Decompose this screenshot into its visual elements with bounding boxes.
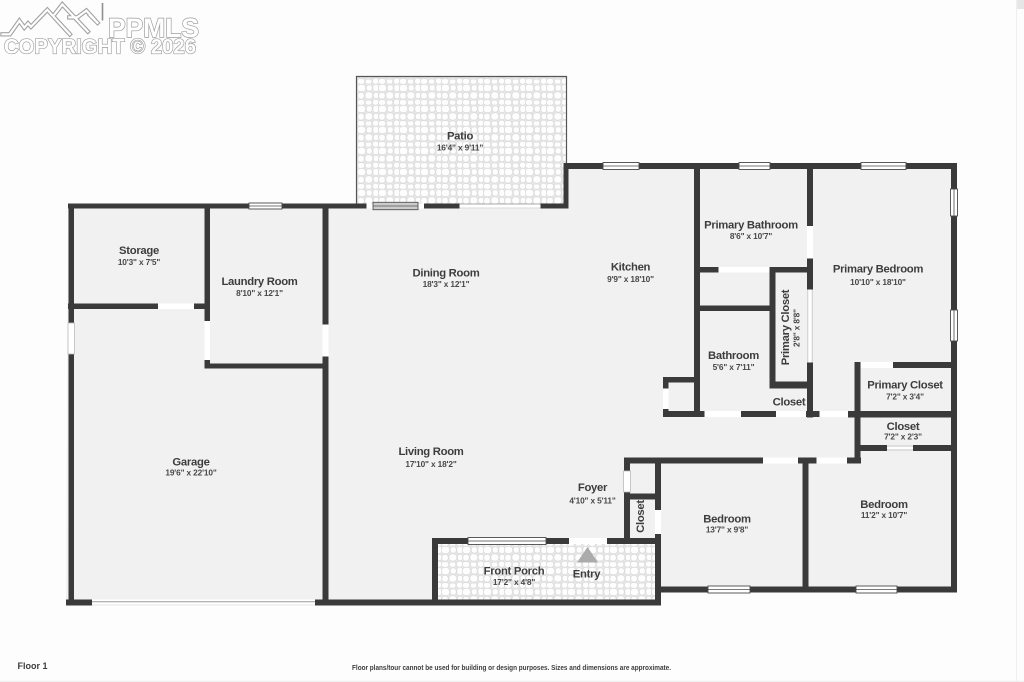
svg-text:Front Porch: Front Porch xyxy=(484,566,545,578)
svg-text:8'10" x 12'1": 8'10" x 12'1" xyxy=(236,288,283,298)
svg-text:Floor 1: Floor 1 xyxy=(18,661,48,671)
svg-text:Primary Bedroom: Primary Bedroom xyxy=(833,264,924,276)
svg-text:16'4" x 9'11": 16'4" x 9'11" xyxy=(437,142,484,152)
svg-text:Patio: Patio xyxy=(447,131,474,143)
svg-text:13'7" x 9'8": 13'7" x 9'8" xyxy=(706,524,749,534)
svg-text:7'2" x 3'4": 7'2" x 3'4" xyxy=(886,392,924,402)
svg-text:Foyer: Foyer xyxy=(578,482,608,494)
svg-text:5'6" x 7'11": 5'6" x 7'11" xyxy=(713,362,755,372)
svg-text:17'2" x 4'8": 17'2" x 4'8" xyxy=(493,577,536,587)
svg-text:Floor plans/tour cannot be use: Floor plans/tour cannot be used for buil… xyxy=(352,663,671,672)
svg-text:Storage: Storage xyxy=(119,245,159,257)
svg-text:2'8" x 8'8": 2'8" x 8'8" xyxy=(792,309,802,347)
svg-text:4'10" x 5'11": 4'10" x 5'11" xyxy=(569,495,616,505)
svg-text:Living Room: Living Room xyxy=(398,446,463,458)
svg-text:10'3" x 7'5": 10'3" x 7'5" xyxy=(118,257,161,267)
svg-text:Primary Bathroom: Primary Bathroom xyxy=(704,220,798,232)
svg-text:Primary Closet: Primary Closet xyxy=(780,289,792,365)
svg-text:Entry: Entry xyxy=(573,569,601,581)
svg-text:Primary Closet: Primary Closet xyxy=(867,380,943,392)
svg-text:10'10" x 18'10": 10'10" x 18'10" xyxy=(850,277,906,287)
svg-text:8'6" x 10'7": 8'6" x 10'7" xyxy=(730,231,773,241)
svg-text:Dining Room: Dining Room xyxy=(413,267,480,279)
svg-text:9'9" x 18'10": 9'9" x 18'10" xyxy=(607,274,654,284)
svg-text:COPYRIGHT © 2026: COPYRIGHT © 2026 xyxy=(4,36,196,59)
svg-text:Kitchen: Kitchen xyxy=(611,262,651,274)
svg-text:18'3" x 12'1": 18'3" x 12'1" xyxy=(423,279,470,289)
svg-text:19'6" x 22'10": 19'6" x 22'10" xyxy=(165,467,216,477)
svg-text:7'2" x 2'3": 7'2" x 2'3" xyxy=(884,432,922,442)
svg-text:Closet: Closet xyxy=(635,500,647,533)
svg-text:17'10" x 18'2": 17'10" x 18'2" xyxy=(405,459,456,469)
svg-text:Closet: Closet xyxy=(773,397,806,409)
svg-text:Laundry Room: Laundry Room xyxy=(221,276,297,288)
svg-text:Bathroom: Bathroom xyxy=(708,350,759,362)
svg-text:11'2" x 10'7": 11'2" x 10'7" xyxy=(861,510,908,520)
